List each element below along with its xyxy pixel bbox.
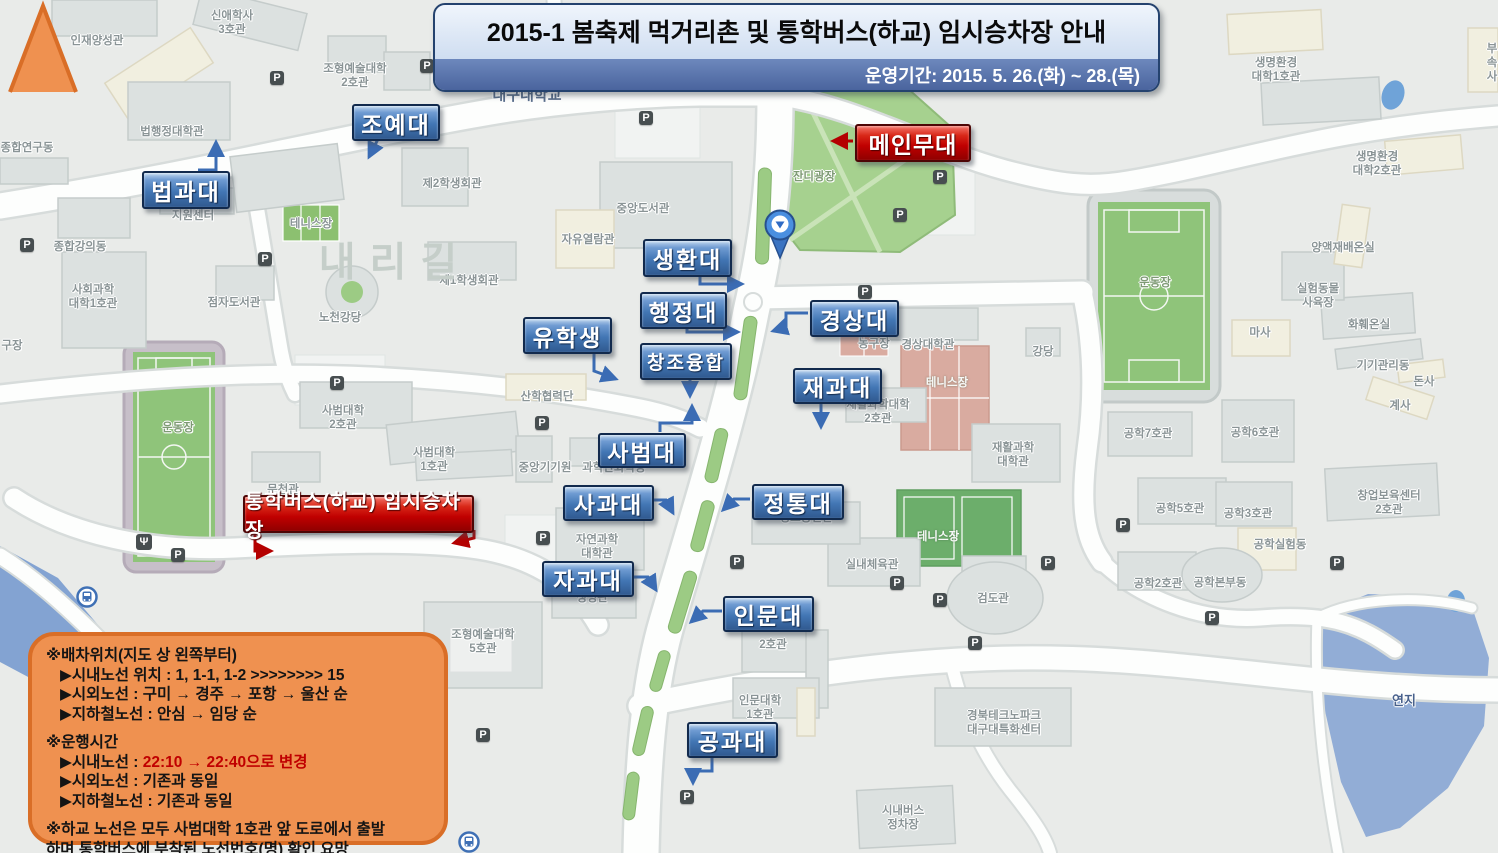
main-stage-label: 메인무대	[855, 124, 971, 162]
notice-text: ※운행시간	[46, 734, 118, 751]
notice-line: ▶시내노선 위치 : 1, 1-1, 1-2 >>>>>>>> 15	[60, 666, 434, 686]
notice-text: ※하교 노선은 모두 사범대학 1호관 앞 도로에서 출발	[46, 821, 385, 838]
notice-line: ※배차위치(지도 상 왼쪽부터)	[46, 646, 434, 666]
banner-subtitle: 운영기간: 2015. 5. 26.(화) ~ 28.(목)	[435, 59, 1158, 90]
notice-text-highlight: 22:10 → 22:40으로 변경	[143, 754, 308, 771]
pond-small-top	[1378, 77, 1409, 113]
notice-line: 하며 통학버스에 부착된 노선번호(명) 확인 요망	[46, 840, 434, 853]
banner-title: 2015-1 봄축제 먹거리촌 및 통학버스(하교) 임시승차장 안내	[435, 5, 1158, 57]
campus-map-announcement: 인재양성관신애학사 3호관조형예술대학 2호관법행정대학관종합연구동대구대학교지…	[0, 0, 1498, 853]
notice-bubble: ※배차위치(지도 상 왼쪽부터)▶시내노선 위치 : 1, 1-1, 1-2 >…	[28, 632, 448, 845]
notice-line: ▶지하철노선 : 기존과 동일	[60, 792, 434, 812]
notice-line: ※하교 노선은 모두 사범대학 1호관 앞 도로에서 출발	[46, 820, 434, 840]
notice-text: 하며 통학버스에 부착된 노선번호(명) 확인 요망	[46, 841, 349, 853]
roundabout	[744, 293, 762, 311]
stadium-right	[1088, 190, 1220, 402]
notice-line: ▶지하철노선 : 안심 → 임당 순	[60, 705, 434, 725]
notice-text: ▶시내노선 위치 : 1, 1-1, 1-2 >>>>>>>> 15	[60, 667, 344, 684]
notice-text: ▶지하철노선 : 기존과 동일	[60, 793, 233, 810]
notice-line: ▶시외노선 : 기존과 동일	[60, 772, 434, 792]
notice-line: ▶시외노선 : 구미 → 경주 → 포항 → 울산 순	[60, 685, 434, 705]
bus-stop-label: 통학버스(하교) 임시승차장	[243, 495, 474, 533]
notice-text: ▶시외노선 : 구미 → 경주 → 포항 → 울산 순	[60, 686, 348, 703]
tennis-court-topleft	[283, 205, 339, 241]
title-banner: 2015-1 봄축제 먹거리촌 및 통학버스(하교) 임시승차장 안내 운영기간…	[433, 3, 1160, 92]
notice-text: ※배차위치(지도 상 왼쪽부터)	[46, 647, 237, 664]
notice-text: ▶시외노선 : 기존과 동일	[60, 773, 218, 790]
notice-text: ▶지하철노선 : 안심 → 임당 순	[60, 706, 257, 723]
notice-line: ※운행시간	[46, 733, 434, 753]
notice-line: ▶시내노선 : 22:10 → 22:40으로 변경	[60, 753, 434, 773]
notice-text: ▶시내노선 :	[60, 754, 143, 771]
